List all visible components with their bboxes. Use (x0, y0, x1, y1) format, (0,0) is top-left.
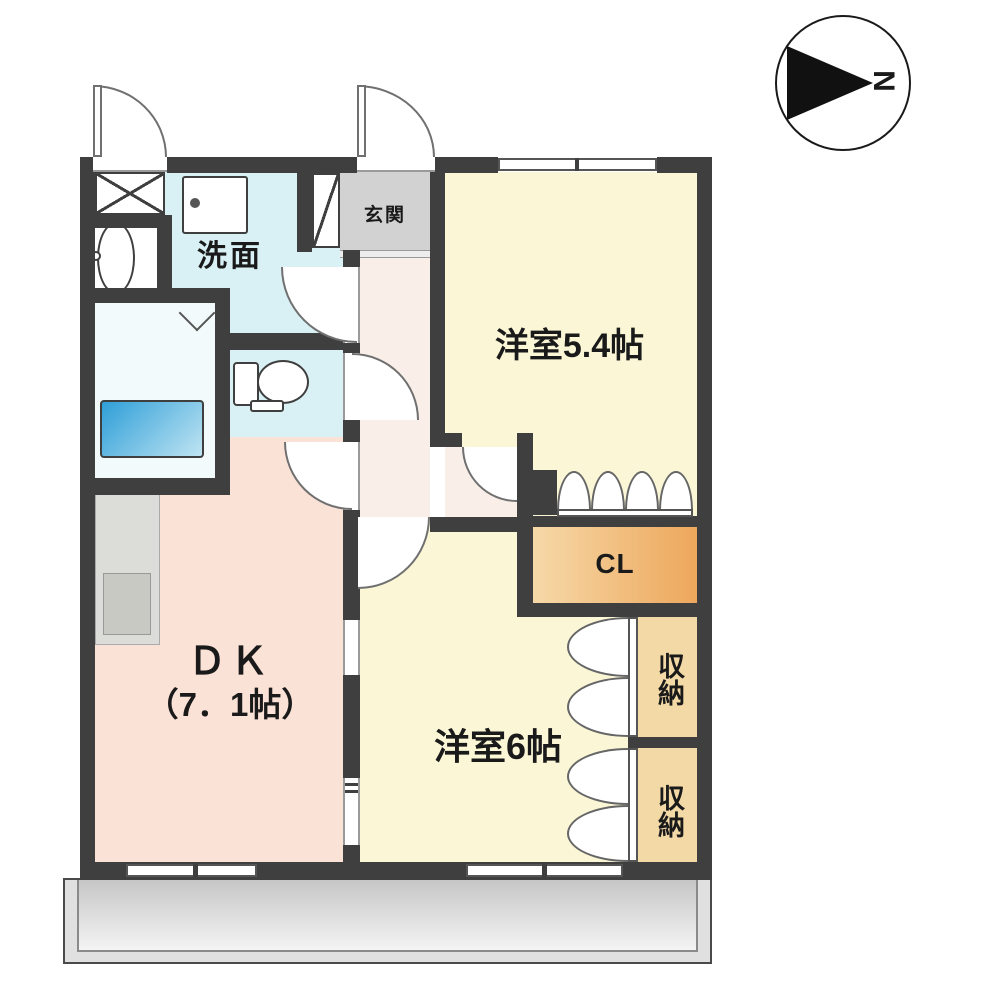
bathtub (100, 400, 204, 458)
sliding-partition-dk-room6 (343, 778, 360, 845)
wall-closet-bottom (517, 603, 712, 617)
oval-water-fixture (97, 222, 135, 294)
wall-dk-room6-3 (343, 845, 360, 862)
wall-hall-left-1 (343, 250, 360, 267)
balcony-inner (77, 880, 698, 952)
wall-bath-top (80, 288, 215, 303)
wall-closet-top (533, 516, 697, 527)
storage-lower-label: 収納 (650, 760, 689, 862)
window-dk-bottom (126, 864, 257, 877)
door-leaf-entrance (357, 85, 366, 157)
storage-upper-door-track (628, 617, 638, 737)
window-room54-mullion (575, 158, 579, 171)
window-room6-mullion (542, 864, 547, 877)
wall-bath-bottom (80, 478, 230, 495)
toilet-bowl (257, 360, 309, 404)
north-arrow-icon (787, 46, 873, 120)
closet-door-track (557, 509, 693, 517)
opening-entrance-door (357, 157, 435, 172)
door-leaf-top-left (93, 85, 102, 157)
wall-entrance-right (430, 157, 445, 447)
wall-hall-left-3 (343, 420, 360, 442)
wall-storage-divider (628, 737, 712, 748)
wall-niche-bottom (95, 215, 157, 228)
window-dk-mullion (193, 864, 198, 877)
entrance-label: 玄関 (340, 200, 430, 227)
partition-tick-2 (345, 790, 358, 793)
dk-size-label: （7．1帖） (95, 678, 365, 726)
dk-label: ＤＫ (120, 630, 340, 685)
wall-left (80, 157, 95, 880)
shoe-cabinet (312, 173, 340, 248)
washing-machine-space (95, 172, 165, 215)
wall-bath-right (215, 288, 230, 478)
partition-tick-1 (345, 783, 358, 786)
wall-room54-door-side (445, 433, 462, 447)
floor-plan: N 洗面 玄関 洋室5.4帖 洋室6帖 ＤＫ （7．1帖） CL 収納 収納 (0, 0, 1000, 1000)
wall-closet-left (517, 433, 533, 607)
closet-label: CL (533, 548, 697, 580)
wall-closet-block (533, 470, 557, 515)
toilet-base (250, 400, 284, 412)
western-room-54-floor (442, 172, 697, 447)
wash-basin-faucet-dot (190, 198, 200, 208)
kitchen-sink (103, 573, 151, 635)
wall-entrance-left (297, 157, 312, 252)
opening-dk-room6 (343, 620, 360, 675)
wall-right (697, 157, 712, 880)
western-room-6-label: 洋室6帖 (368, 718, 628, 770)
storage-lower-door-track (628, 748, 638, 862)
door-arc-entrance (357, 85, 435, 157)
washroom-label: 洗面 (180, 231, 280, 275)
compass-north-label: N (866, 64, 900, 98)
opening-top-left-door (93, 157, 167, 172)
western-room-54-label: 洋室5.4帖 (442, 318, 697, 367)
storage-upper-label: 収納 (650, 628, 689, 730)
door-arc-top-left (93, 85, 167, 157)
wall-hall-left-2 (343, 343, 360, 353)
wall-top-2 (167, 157, 357, 173)
